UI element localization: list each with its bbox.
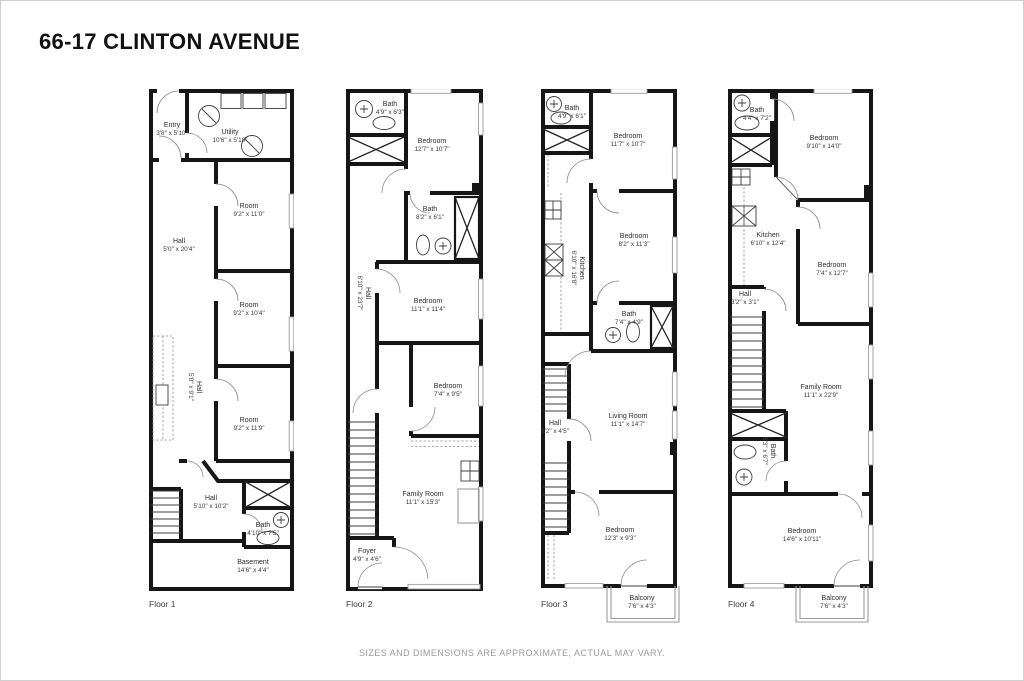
floor2-bath2-label: Bath8'2" x 6'1" [416, 206, 444, 222]
floor4-bedroom2-label: Bedroom7'4" x 12'7" [816, 262, 848, 278]
floor-4-tag: Floor 4 [728, 599, 754, 609]
floor3-bedroom2-label: Bedroom8'2" x 11'3" [618, 233, 649, 249]
floor2-foyer-label: Foyer4'9" x 4'6" [353, 548, 381, 564]
floor4-bedroom1-label: Bedroom9'10" x 14'0" [806, 135, 841, 151]
floor-plan-floor-4: Bath4'4" x 7'2" Bedroom9'10" x 14'0" Kit… [728, 89, 878, 634]
floor-plan-page: 66-17 CLINTON AVENUE [0, 0, 1024, 681]
floor-1-plan-drawing [149, 89, 294, 629]
floor3-kitchen-label: Kitchen6'10" x 16'8" [569, 250, 585, 285]
floor1-hall3-label: Hall5'10" x 10'2" [193, 495, 228, 511]
floor2-bedroom2-label: Bedroom11'1" x 11'4" [411, 298, 445, 314]
floor4-bath1-label: Bath4'4" x 7'2" [743, 107, 771, 123]
floor1-hall2-label: Hall5'0" x 9'1" [186, 373, 202, 401]
floor1-hall-label: Hall5'0" x 20'4" [163, 238, 195, 254]
floor2-family-room-label: Family Room11'1" x 15'3" [402, 491, 443, 507]
floor4-bedroom3-label: Bedroom14'6" x 10'11" [783, 528, 821, 544]
floor1-bath-label: Bath4'10" x 7'5" [247, 522, 279, 538]
floor4-hall-label: Hall3'2" x 3'1" [731, 291, 759, 307]
floor-plan-floor-1: Entry3'8" x 5'10" Utility10'6" x 5'10" R… [149, 89, 294, 634]
floor1-utility-label: Utility10'6" x 5'10" [212, 129, 247, 145]
floor4-kitchen-label: Kitchen6'10" x 12'4" [750, 232, 785, 248]
floor3-bedroom3-label: Bedroom12'3" x 9'3" [604, 527, 636, 543]
floor-plan-floor-2: Bath4'9" x 6'3" Bedroom12'7" x 10'7" Bat… [346, 89, 486, 634]
floor2-bedroom1-label: Bedroom12'7" x 10'7" [414, 138, 449, 154]
floor2-hall-label: Hall6'10" x 23'7" [355, 275, 371, 310]
floor-plan-floor-3: Bath4'9" x 6'1" Bedroom11'7" x 10'7" Kit… [541, 89, 681, 634]
floor3-hall-label: Hall3'2" x 4'5" [541, 420, 569, 436]
floor2-bedroom3-label: Bedroom7'4" x 9'5" [434, 383, 462, 399]
page-title: 66-17 CLINTON AVENUE [39, 29, 300, 55]
floor1-room1-label: Room9'2" x 11'0" [233, 203, 264, 219]
floor4-balcony-label: Balcony7'6" x 4'3" [820, 595, 848, 611]
floor3-balcony-label: Balcony7'6" x 4'3" [628, 595, 656, 611]
floor3-bath2-label: Bath7'4" x 4'9" [615, 311, 643, 327]
floor1-room3-label: Room9'2" x 11'9" [233, 417, 264, 433]
floor3-bath1-label: Bath4'9" x 6'1" [558, 105, 586, 121]
disclaimer-text: SIZES AND DIMENSIONS ARE APPROXIMATE, AC… [1, 648, 1023, 658]
floor1-room2-label: Room9'2" x 10'4" [233, 302, 265, 318]
floor1-basement-label: Basement14'6" x 4'4" [237, 559, 269, 575]
floor-4-plan-drawing [728, 89, 878, 629]
floor-3-tag: Floor 3 [541, 599, 567, 609]
floor-2-tag: Floor 2 [346, 599, 372, 609]
floor2-bath1-label: Bath4'9" x 6'3" [376, 101, 404, 117]
floor-3-plan-drawing [541, 89, 681, 629]
floor4-family-room-label: Family Room11'1" x 22'9" [800, 384, 841, 400]
floor3-bedroom1-label: Bedroom11'7" x 10'7" [611, 133, 646, 149]
floor3-living-room-label: Living Room11'1" x 14'7" [609, 413, 648, 429]
floor1-entry-label: Entry3'8" x 5'10" [156, 122, 188, 138]
floor4-bath2-label: Bath5'3" x 6'7" [760, 437, 776, 465]
floor-1-tag: Floor 1 [149, 599, 175, 609]
